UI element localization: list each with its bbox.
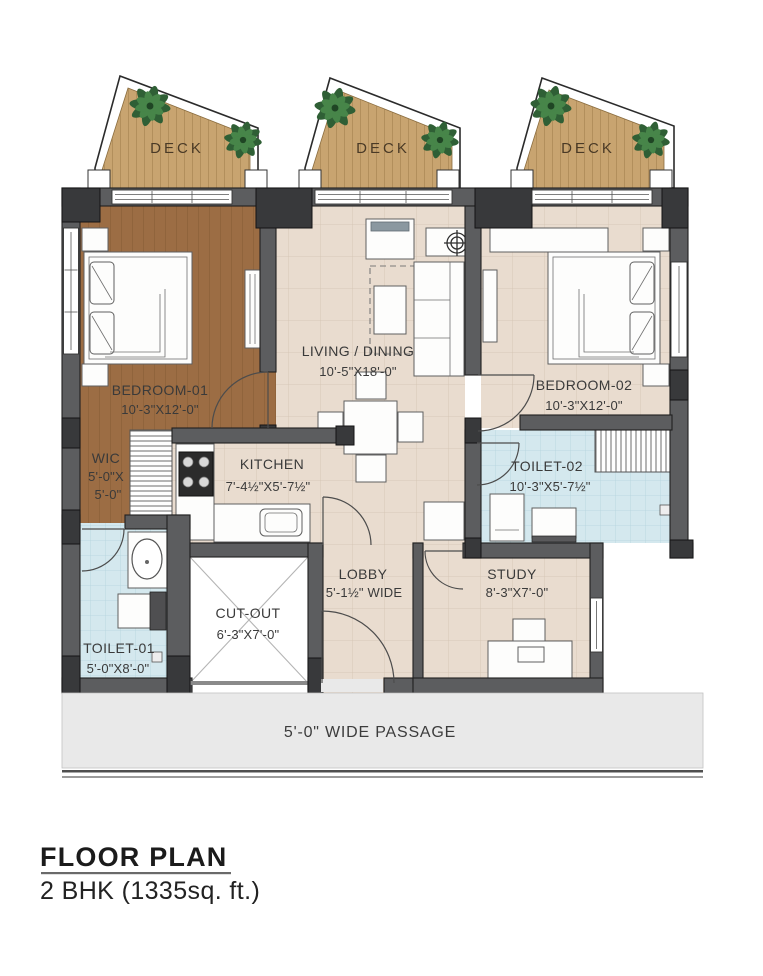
passage-line-1 [62,770,703,773]
pillar [62,656,80,693]
window-bedroom1-left [64,228,79,354]
wall-living-bedroom2 [465,206,481,375]
window-bedroom1-top [112,190,232,204]
bedside-table [643,228,669,251]
wall-study-bottom [413,678,603,693]
pillar [308,658,323,693]
floor-plan-svg: DECK DECK DECK [0,0,763,976]
bedroom1-label: BEDROOM-01 [112,382,209,398]
cutout-label: CUT-OUT [215,605,280,621]
washbasin-counter [490,494,524,541]
cutout-dims: 6'-3"X7'-0" [217,627,280,642]
passage-line-2 [62,776,703,778]
wall-cutout-top [190,543,323,557]
pillar [62,510,80,544]
wall-study-top-r [463,543,603,558]
wc [532,508,576,538]
toilet1-label: TOILET-01 [83,640,155,656]
pillar [62,188,100,222]
lobby-dims: 5'-1½" WIDE [326,585,403,600]
washbasin [132,539,162,579]
tv-screen [371,222,409,231]
bedside-table [82,228,108,251]
plan-title: FLOOR PLAN [40,842,228,872]
decks: DECK DECK DECK [88,76,674,188]
bedroom2-dims: 10'-3"X12'-0" [545,398,623,413]
wall-bedroom2-bottom [520,415,672,430]
floor-plan-page: DECK DECK DECK [0,0,763,976]
dining-chair [398,412,423,442]
bedroom1-dims: 10'-3"X12'-0" [121,402,199,417]
wc-base [532,536,576,542]
lobby-label: LOBBY [339,566,388,582]
dresser-shelf [490,228,608,252]
plan-subtitle: 2 BHK (1335sq. ft.) [40,877,260,905]
wc-tank [150,592,166,630]
wardrobe-sliding [245,270,260,348]
study-label: STUDY [487,566,537,582]
passage-label: 5'-0" WIDE PASSAGE [284,724,456,741]
kitchen-dims: 7'-4½"X5'-7½" [226,479,311,494]
pillar [670,370,688,400]
toilet2-label: TOILET-02 [511,458,583,474]
pillar [475,188,532,228]
deck-1: DECK [95,76,263,188]
pillar [662,188,688,228]
window-bedroom2-top [532,190,652,204]
toilet1-dims: 5'-0"X8'-0" [87,661,150,676]
title-block: FLOOR PLAN 2 BHK (1335sq. ft.) [40,842,260,905]
door-stop-icon [660,505,670,515]
wic-dims-2: 5'-0" [95,487,122,502]
bedside-table [82,364,108,386]
pillar [465,538,481,558]
living-dims: 10'-5"X18'-0" [319,364,397,379]
deck-2-label: DECK [356,140,410,157]
window-study-right [591,598,603,652]
window-bedroom2-right [671,262,687,357]
wic-dims-1: 5'-0"X [88,469,124,484]
bedside-table [643,364,669,386]
pillar [62,418,80,448]
wic-label: WIC [92,450,120,466]
pillar [167,656,190,693]
pillar [670,540,693,558]
toilet2-dims: 10'-3"X5'-7½" [509,479,590,494]
pillar [256,188,312,228]
study-dims: 8'-3"X7'-0" [486,585,549,600]
bedroom-02-wardrobe-hatch [595,428,672,472]
wardrobe-sliding [483,270,497,342]
wic-wardrobe-hatch [130,430,172,522]
basin-drain [145,560,149,564]
passage: 5'-0" WIDE PASSAGE [62,693,703,778]
sofa [414,262,464,376]
cutout-bottom-edge [190,681,310,685]
wall-kitchen-top [172,428,352,443]
deck-1-label: DECK [150,140,204,157]
dining-chair [356,455,386,482]
wc [118,594,152,628]
cabinet [424,502,464,540]
deck-3-label: DECK [561,140,615,157]
bedroom2-label: BEDROOM-02 [536,377,633,393]
wall-study-left [413,543,423,683]
kitchen-label: KITCHEN [240,456,304,472]
desk-item [518,647,544,662]
title-underline [41,872,231,874]
desk-chair [513,619,545,644]
wall-bedroom1-living [260,206,276,372]
coffee-table [374,286,406,334]
living-label: LIVING / DINING [302,343,415,359]
kitchen-top-pillar [336,426,354,445]
window-living-top [315,190,452,204]
